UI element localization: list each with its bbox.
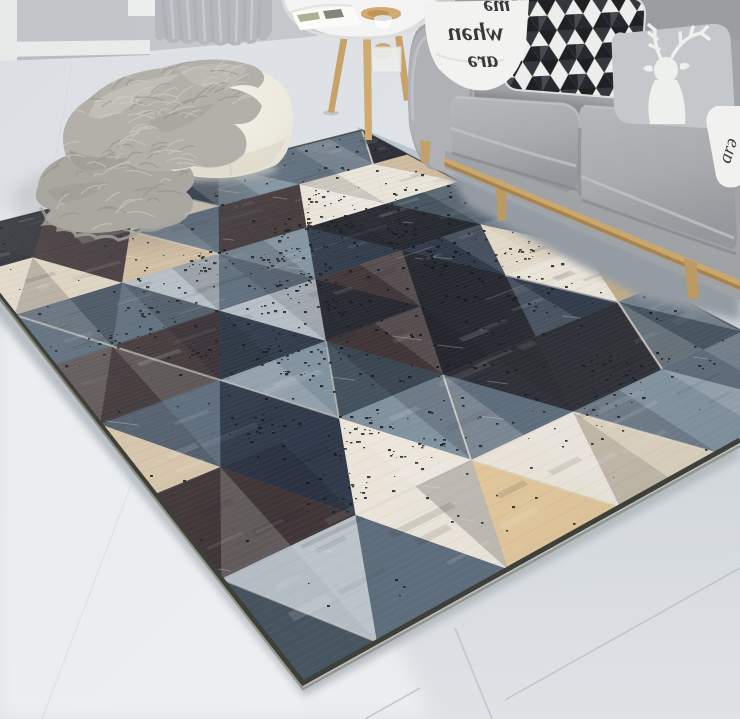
svg-text:arə: arə (467, 47, 498, 72)
svg-text:mə: mə (483, 0, 510, 16)
svg-text:whən: whən (447, 19, 503, 46)
